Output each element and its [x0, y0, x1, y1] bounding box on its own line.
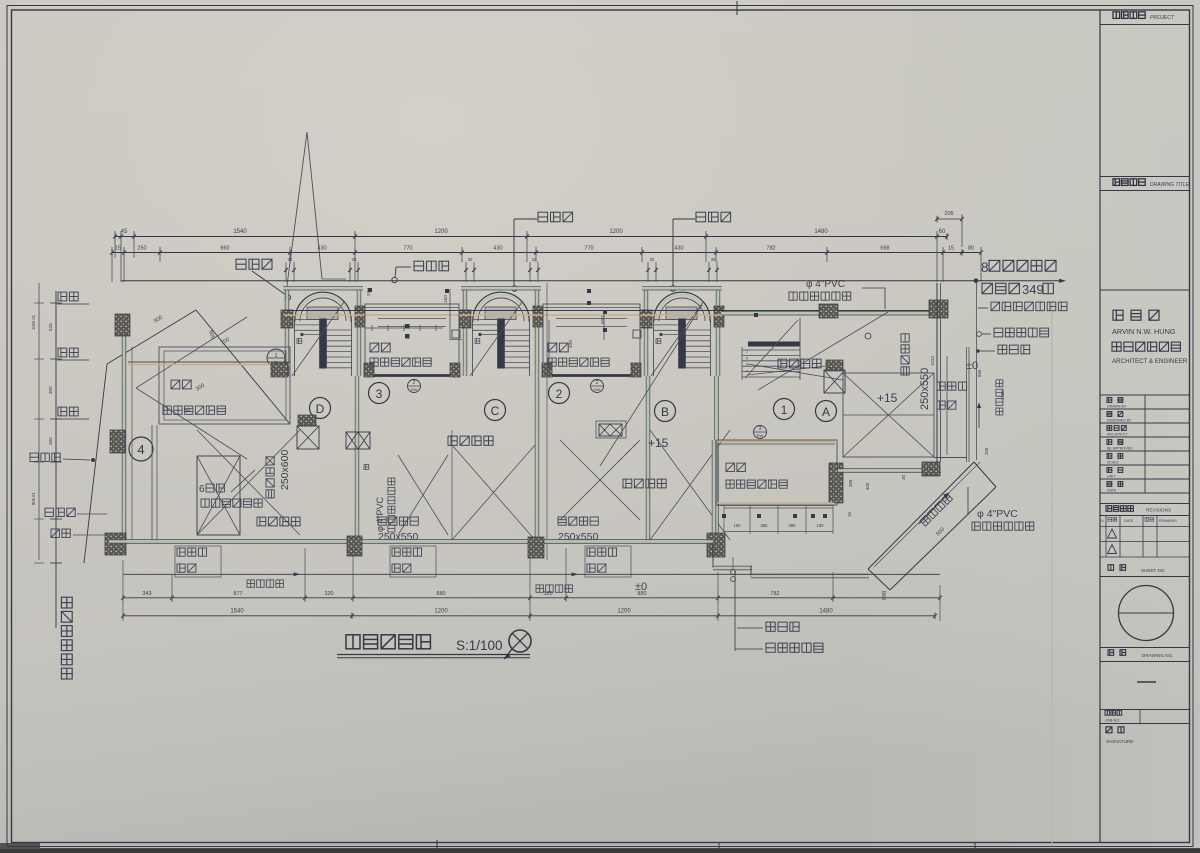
- svg-text:45: 45: [121, 229, 128, 235]
- svg-text:2: 2: [413, 380, 416, 386]
- svg-text:30: 30: [532, 257, 537, 262]
- svg-text:300: 300: [48, 386, 53, 394]
- svg-text:385: 385: [761, 523, 769, 528]
- svg-text:1540: 1540: [230, 609, 244, 615]
- svg-text:770: 770: [403, 246, 412, 252]
- svg-text:60: 60: [939, 229, 946, 235]
- svg-text:φ 4"PVC: φ 4"PVC: [375, 496, 385, 532]
- svg-text:30: 30: [650, 257, 655, 262]
- svg-text:BE APPROVED: BE APPROVED: [1107, 447, 1133, 451]
- svg-text:600: 600: [600, 316, 606, 324]
- svg-text:430: 430: [674, 246, 683, 252]
- svg-text:REMARKS: REMARKS: [1159, 519, 1177, 523]
- svg-text:200: 200: [984, 447, 989, 455]
- svg-text:349: 349: [1022, 282, 1044, 297]
- svg-text:DRAWING TITLE: DRAWING TITLE: [1150, 182, 1190, 188]
- svg-text:400: 400: [865, 482, 870, 490]
- svg-text:880: 880: [637, 591, 646, 597]
- svg-text:30: 30: [901, 474, 906, 480]
- svg-text:φ 4"PVC: φ 4"PVC: [806, 279, 845, 290]
- svg-text:528: 528: [48, 323, 53, 331]
- svg-text:1200: 1200: [434, 229, 448, 235]
- svg-text:A: A: [822, 405, 830, 419]
- svg-text:250x550: 250x550: [919, 368, 931, 410]
- svg-text:DESIGNED BY: DESIGNED BY: [1107, 419, 1132, 423]
- svg-text:320: 320: [543, 591, 552, 597]
- svg-text:8: 8: [981, 260, 989, 275]
- svg-text:D: D: [316, 402, 325, 416]
- svg-text:ARCHITECT: ARCHITECT: [1107, 433, 1128, 437]
- svg-text:782: 782: [770, 591, 779, 597]
- svg-text:1: 1: [274, 353, 277, 359]
- svg-text:430: 430: [493, 246, 502, 252]
- svg-text:160: 160: [443, 295, 449, 303]
- svg-text:806.01: 806.01: [31, 492, 36, 505]
- svg-text:φ 4"PVC: φ 4"PVC: [977, 508, 1018, 520]
- svg-text:DW: DW: [594, 387, 601, 392]
- svg-text:320: 320: [324, 591, 333, 597]
- svg-text:DW: DW: [411, 387, 418, 392]
- svg-text:860: 860: [220, 246, 229, 252]
- svg-text:343: 343: [142, 591, 151, 597]
- svg-text:30: 30: [711, 257, 716, 262]
- svg-text:4: 4: [137, 442, 144, 457]
- svg-text:2: 2: [596, 380, 599, 386]
- svg-text:ARVIN N.W. HUNG: ARVIN N.W. HUNG: [1112, 327, 1176, 336]
- svg-text:898: 898: [882, 591, 888, 600]
- svg-text:80: 80: [968, 246, 974, 252]
- svg-text:877: 877: [233, 591, 242, 597]
- svg-text:±0: ±0: [966, 360, 978, 372]
- svg-text:770: 770: [584, 246, 593, 252]
- svg-text:15: 15: [948, 246, 954, 252]
- svg-text:250: 250: [137, 246, 146, 252]
- svg-text:160: 160: [734, 523, 742, 528]
- svg-text:3: 3: [759, 426, 762, 432]
- svg-text:REVISIONS: REVISIONS: [1146, 508, 1171, 513]
- svg-text:385: 385: [789, 523, 797, 528]
- svg-text:1480: 1480: [819, 609, 833, 615]
- svg-text:300: 300: [48, 437, 53, 445]
- svg-text:N.: N.: [1101, 519, 1104, 523]
- svg-text:15: 15: [115, 246, 121, 252]
- svg-text:S:1/100: S:1/100: [456, 638, 503, 653]
- svg-text:DATE: DATE: [1107, 489, 1117, 493]
- svg-text:1200: 1200: [617, 609, 631, 615]
- svg-text:205: 205: [944, 211, 953, 217]
- svg-text:DRAWN BY: DRAWN BY: [1107, 405, 1127, 409]
- svg-text:1200: 1200: [434, 609, 448, 615]
- svg-text:JOB NO.: JOB NO.: [1105, 719, 1120, 723]
- svg-text:UNIT: UNIT: [1107, 475, 1116, 479]
- svg-text:250x600: 250x600: [279, 450, 291, 490]
- svg-text:400: 400: [568, 340, 574, 348]
- svg-text:782: 782: [766, 246, 775, 252]
- svg-text:880: 880: [436, 591, 445, 597]
- svg-text:+15: +15: [648, 436, 669, 450]
- svg-text:SCALE: SCALE: [1107, 461, 1119, 465]
- svg-text:+15: +15: [877, 391, 898, 405]
- svg-text:3: 3: [376, 387, 383, 401]
- svg-text:6: 6: [746, 357, 748, 361]
- svg-text:B: B: [661, 405, 669, 419]
- svg-text:1480: 1480: [814, 229, 828, 235]
- svg-text:30: 30: [352, 257, 357, 262]
- svg-text:DATE: DATE: [1124, 519, 1134, 523]
- svg-text:C: C: [491, 404, 500, 418]
- svg-text:15: 15: [847, 512, 852, 517]
- svg-text:385: 385: [848, 479, 853, 487]
- svg-text:SHEET NO.: SHEET NO.: [1141, 568, 1166, 573]
- svg-text:1: 1: [781, 403, 788, 417]
- svg-text:5: 5: [746, 363, 748, 367]
- svg-text:1200: 1200: [609, 229, 623, 235]
- svg-text:160: 160: [817, 523, 825, 528]
- svg-text:2: 2: [556, 387, 563, 401]
- svg-text:DRAWING NO.: DRAWING NO.: [1142, 653, 1173, 658]
- svg-text:30: 30: [468, 257, 473, 262]
- svg-text:1060.01: 1060.01: [31, 314, 36, 330]
- svg-text:30: 30: [288, 257, 293, 262]
- svg-text:1540: 1540: [233, 229, 247, 235]
- svg-text:SIGNATURE: SIGNATURE: [1106, 739, 1134, 745]
- svg-text:DW: DW: [757, 433, 764, 438]
- svg-text:ARCHITECT & ENGINEER: ARCHITECT & ENGINEER: [1112, 358, 1188, 365]
- svg-text:7: 7: [746, 350, 748, 354]
- svg-text:4: 4: [746, 370, 748, 374]
- svg-text:698: 698: [880, 246, 889, 252]
- svg-text:PROJECT: PROJECT: [1150, 15, 1175, 21]
- svg-text:6: 6: [199, 484, 205, 495]
- svg-text:1033: 1033: [930, 356, 935, 366]
